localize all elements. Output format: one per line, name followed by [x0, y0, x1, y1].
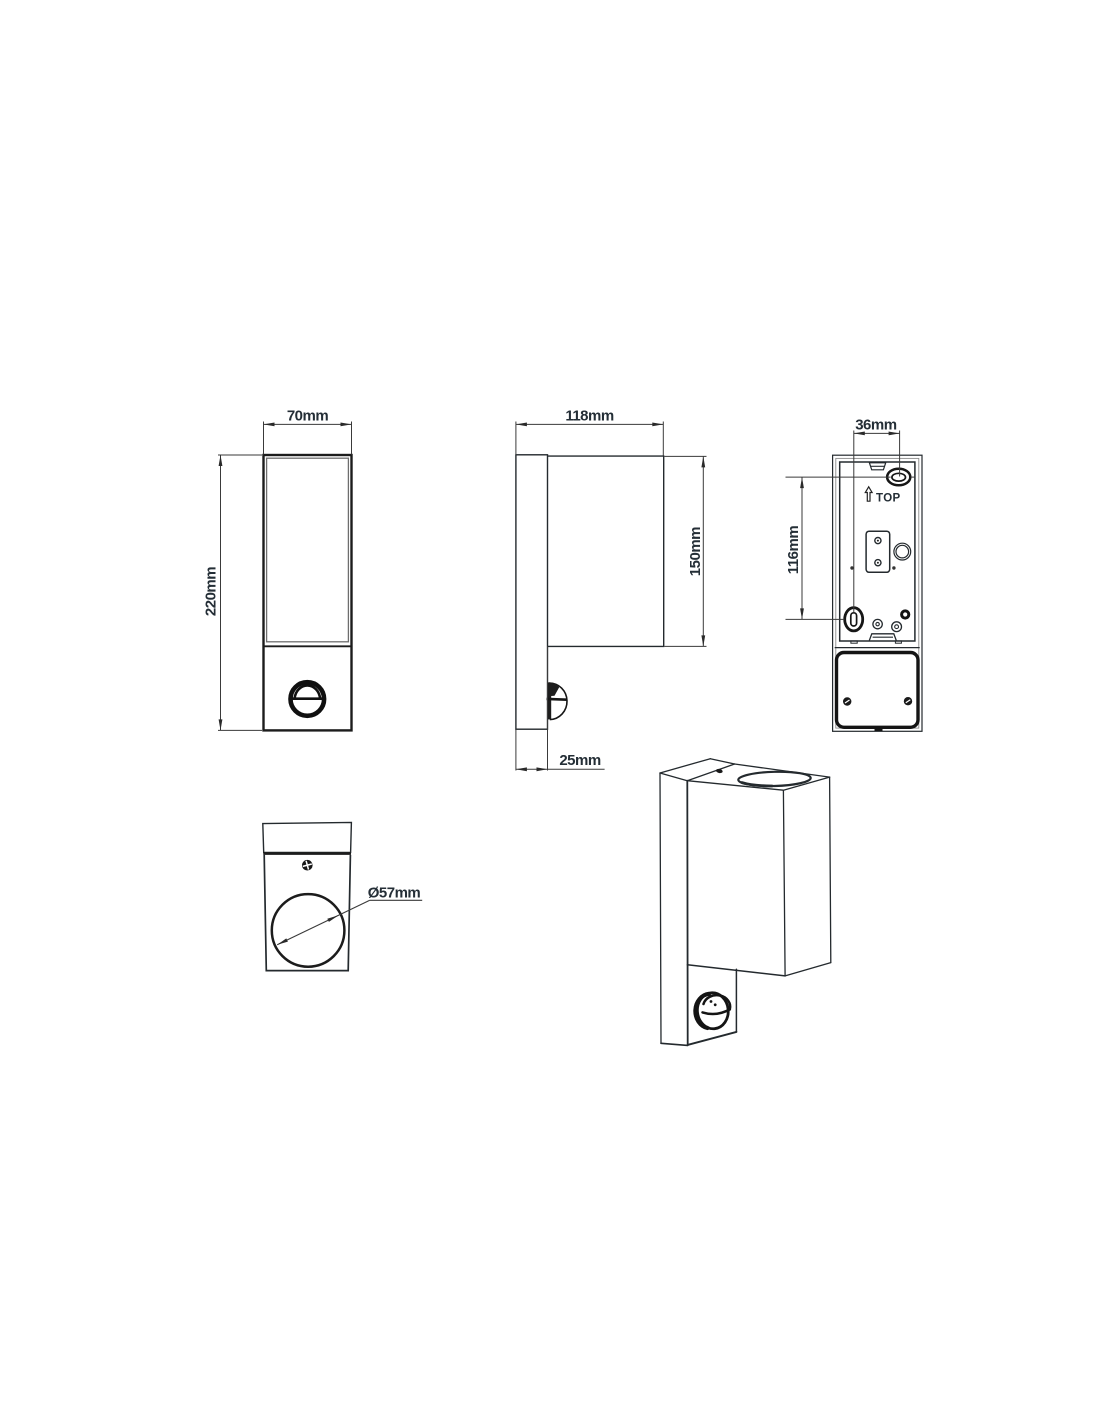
svg-text:TOP: TOP — [876, 492, 901, 504]
svg-text:118mm: 118mm — [565, 408, 614, 425]
svg-text:25mm: 25mm — [559, 752, 601, 769]
svg-text:116mm: 116mm — [785, 526, 802, 575]
svg-text:Ø57mm: Ø57mm — [368, 885, 421, 902]
svg-text:70mm: 70mm — [287, 408, 329, 425]
svg-text:36mm: 36mm — [855, 416, 897, 433]
svg-text:220mm: 220mm — [203, 567, 220, 616]
svg-text:150mm: 150mm — [687, 527, 704, 576]
